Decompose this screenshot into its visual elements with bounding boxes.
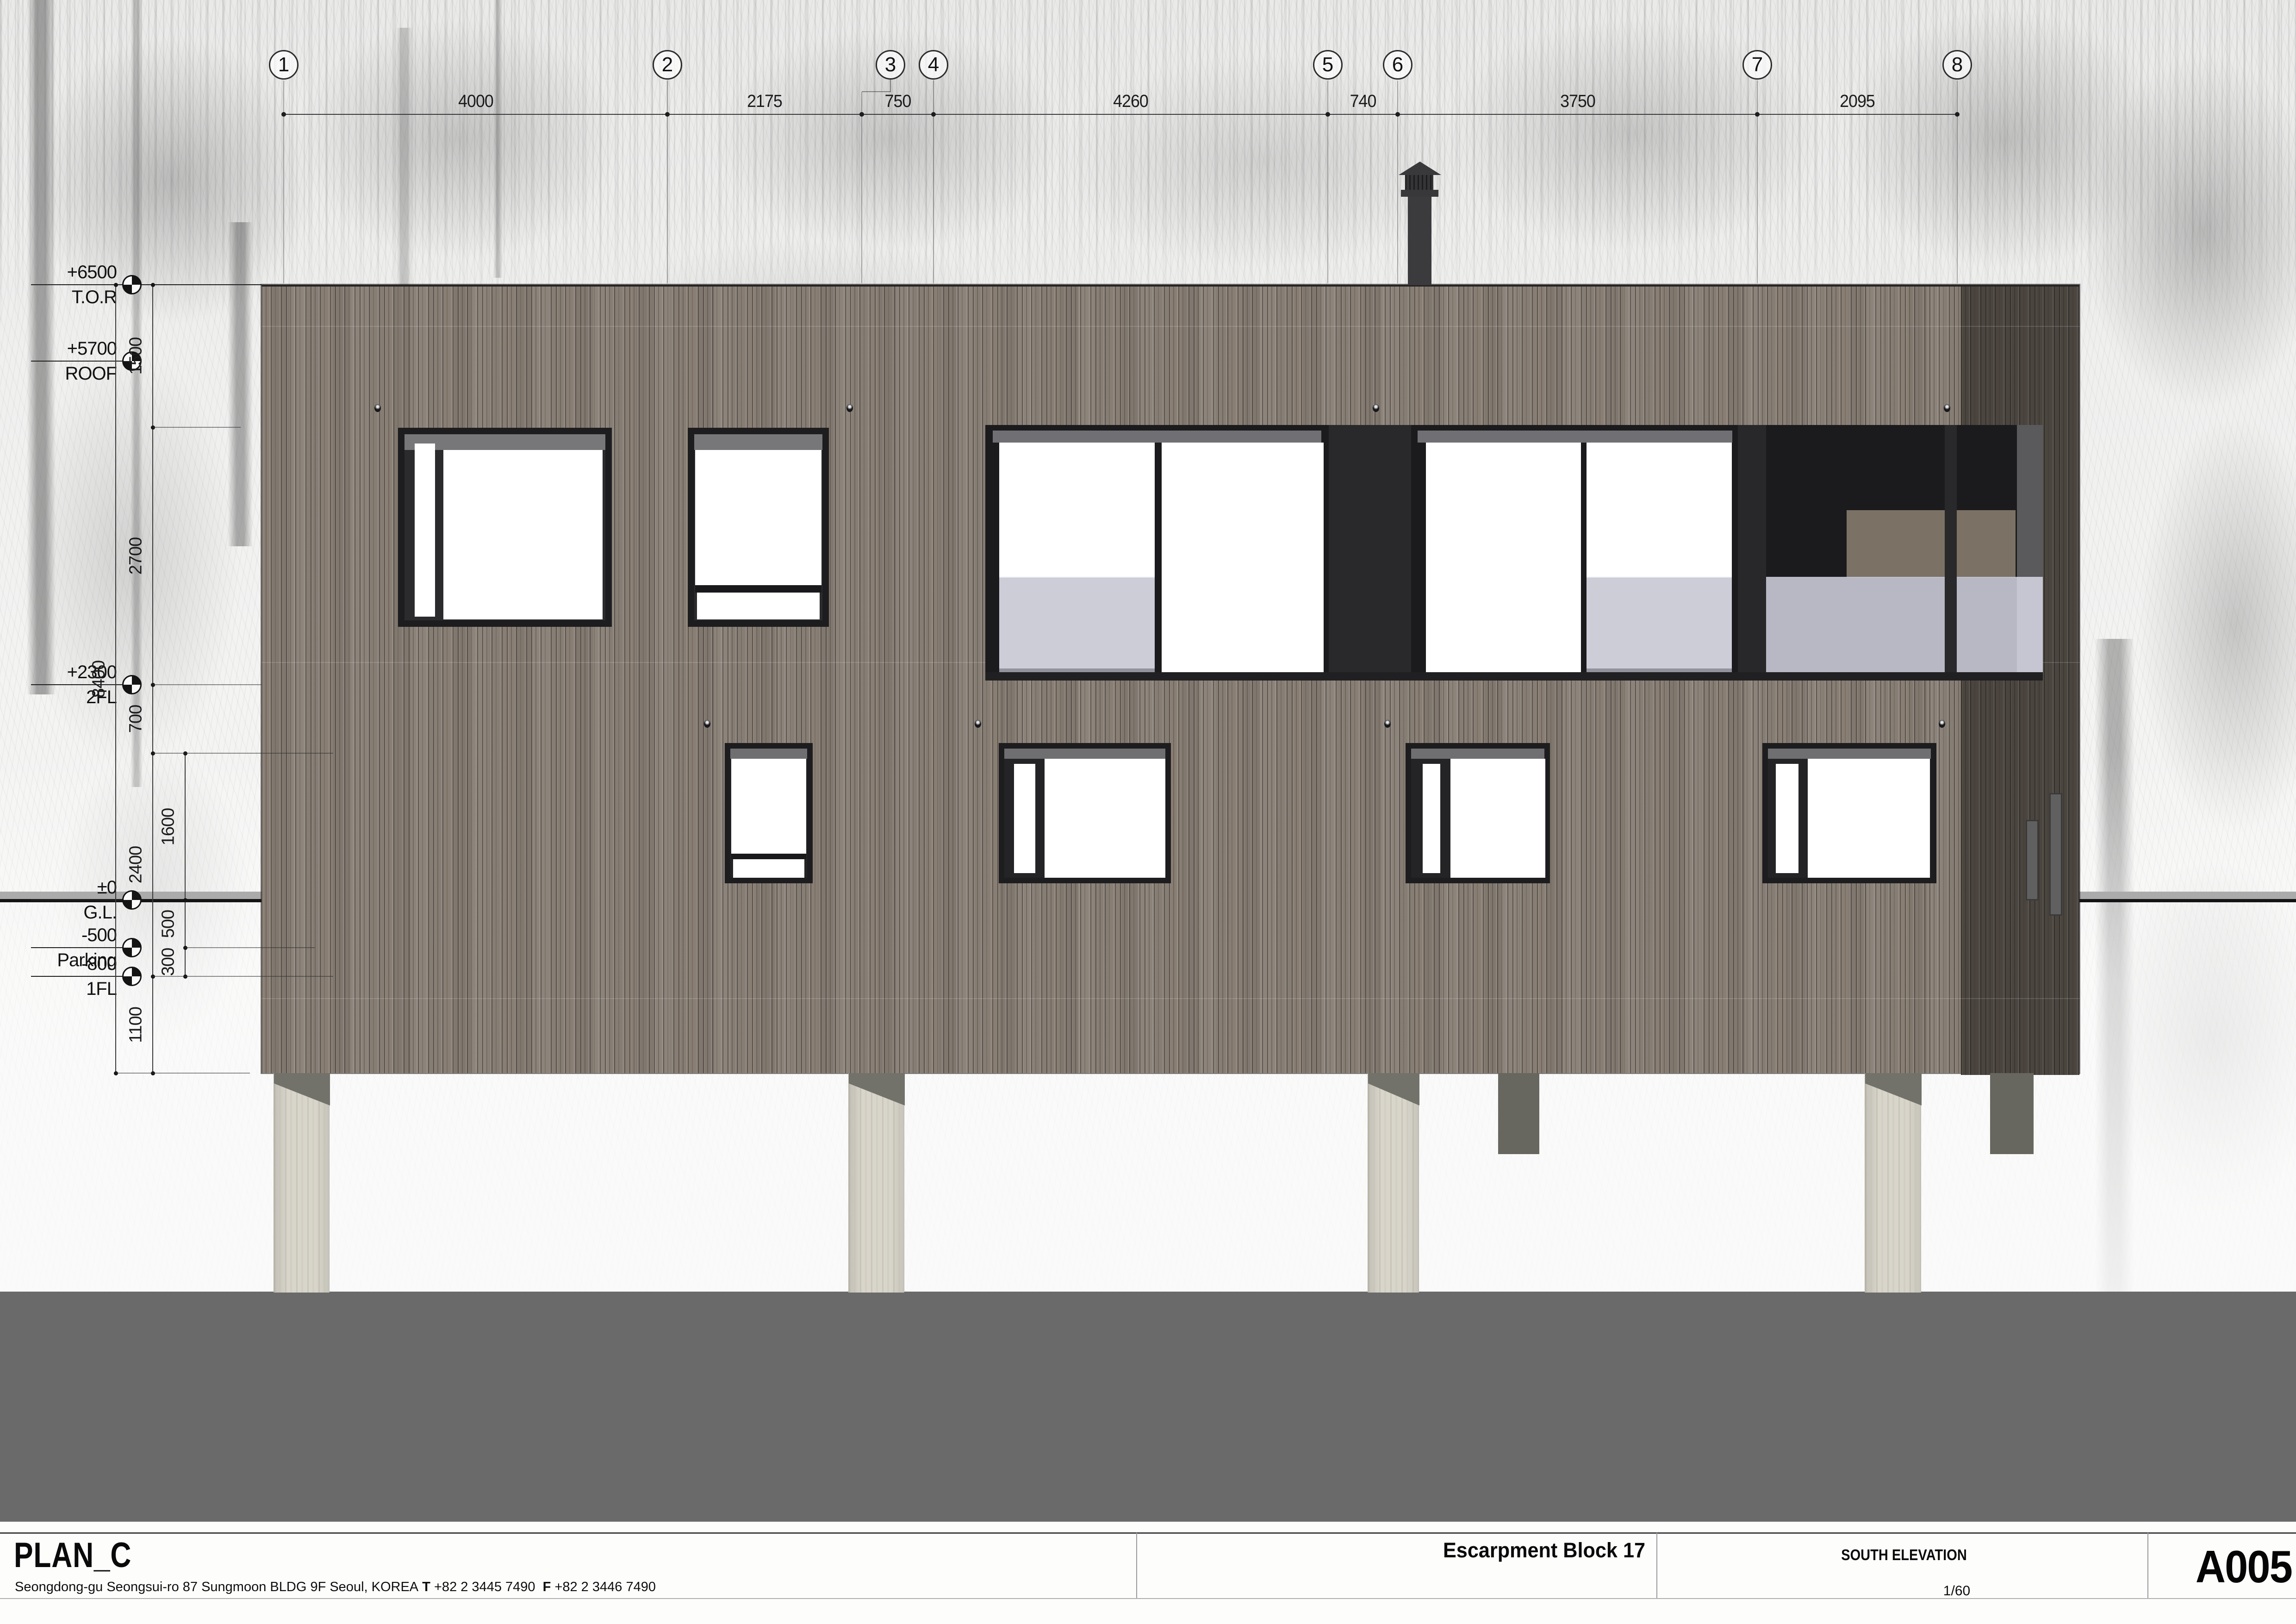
concrete-pillar xyxy=(848,1073,904,1293)
vertical-dim-value: 1600 xyxy=(159,808,179,845)
top-dimension-line xyxy=(284,114,1957,115)
grid-bubble-5: 5 xyxy=(1313,50,1343,80)
louvre-screen xyxy=(1766,425,2017,681)
dimension-tick xyxy=(1325,112,1330,117)
window-1f-4-casement xyxy=(1776,764,1798,873)
window-1f-3-header xyxy=(1411,749,1544,759)
extension-line xyxy=(153,753,333,754)
chain-tick xyxy=(114,1071,118,1075)
extension-line xyxy=(153,684,261,685)
pillar-cap-shadow xyxy=(1368,1073,1419,1106)
louvre-dark-post xyxy=(1945,425,1957,681)
fastener-dot xyxy=(1384,720,1391,728)
ground-line-right-black xyxy=(2079,899,2296,902)
band-post xyxy=(1738,425,1766,681)
chimney-louvre-box xyxy=(1405,175,1433,190)
vertical-dim-value: 1100 xyxy=(126,1007,146,1043)
dimension-tick xyxy=(931,112,936,117)
door-pull-long xyxy=(2049,793,2062,916)
window-2f-2-header xyxy=(694,434,822,450)
grid-bubble-3: 3 xyxy=(876,50,905,80)
fax-number: +82 2 3446 7490 xyxy=(554,1580,656,1594)
band-a-pane2-glass xyxy=(1162,443,1324,672)
level-value: +5700 xyxy=(28,339,117,358)
vertical-dim-line-overall xyxy=(115,285,116,1073)
sheet: 1234567840002175750426074037502095+6500T… xyxy=(0,0,2296,1624)
drawing-scale: 1/60 xyxy=(1910,1583,2003,1599)
grid-line xyxy=(1757,81,1758,283)
level-name: ROOF xyxy=(28,364,117,383)
title-block-divider-2 xyxy=(1656,1533,1657,1598)
level-line xyxy=(31,361,122,362)
extension-line xyxy=(153,976,333,977)
fax-label: F xyxy=(543,1580,551,1594)
grid-bubble-2: 2 xyxy=(653,50,682,80)
dimension-tick xyxy=(859,112,864,117)
grid-bubble-7: 7 xyxy=(1742,50,1772,80)
dimension-tick xyxy=(281,112,286,117)
dark-wall-stub xyxy=(1990,1073,2034,1154)
level-value: ±0 xyxy=(28,878,117,897)
chain-tick xyxy=(151,283,155,287)
ground-band xyxy=(0,1292,2296,1522)
level-symbol xyxy=(122,890,142,910)
band-group-b-header xyxy=(1418,431,1732,443)
band-b-pane2-glass xyxy=(1587,443,1732,578)
vertical-dim-value: 2400 xyxy=(126,846,146,884)
top-dimension-value: 4000 xyxy=(436,92,515,112)
grid-line xyxy=(283,81,284,283)
pillar-cap-shadow xyxy=(1865,1073,1922,1106)
level-line xyxy=(31,284,261,285)
facade-dark-wood-strip xyxy=(1961,287,2079,1075)
view-name: SOUTH ELEVATION xyxy=(1690,1546,2118,1564)
grid-line xyxy=(667,81,668,283)
fastener-dot xyxy=(1939,720,1945,728)
top-dimension-value: 740 xyxy=(1324,92,1402,112)
concrete-pillar xyxy=(1368,1073,1419,1293)
level-line xyxy=(31,976,122,977)
chimney-stack xyxy=(1408,196,1431,285)
window-1f-4-header xyxy=(1768,749,1931,759)
fastener-dot xyxy=(975,720,981,728)
pillar-cap-shadow xyxy=(274,1073,330,1106)
louvre-slats xyxy=(1766,425,2017,681)
dimension-tick xyxy=(665,112,670,117)
address-text: Seongdong-gu Seongsui-ro 87 Sungmoon BLD… xyxy=(15,1580,418,1594)
level-name: T.O.R xyxy=(28,287,117,307)
band-bottom-rail xyxy=(985,672,2043,681)
grid-bubble-6: 6 xyxy=(1383,50,1412,80)
firm-logo: PLAN_C xyxy=(14,1535,131,1575)
siding-joint-line xyxy=(261,326,2079,327)
concrete-pillar xyxy=(274,1073,330,1293)
pillar-cap-shadow xyxy=(849,1073,905,1106)
chain-tick xyxy=(183,974,187,979)
siding-joint-line xyxy=(261,998,2079,999)
window-2f-2-awning xyxy=(697,593,820,619)
window-1f-3-casement xyxy=(1423,764,1440,873)
level-name: G.L. xyxy=(28,903,117,922)
grid-bubble-8: 8 xyxy=(1942,50,1972,80)
chain-tick xyxy=(151,683,155,687)
concrete-pillar xyxy=(1865,1073,1921,1293)
window-2f-1-glass xyxy=(443,450,603,619)
firm-address: Seongdong-gu Seongsui-ro 87 Sungmoon BLD… xyxy=(15,1580,656,1595)
band-b-pane1-glass xyxy=(1426,443,1581,672)
band-b-pane2-guard xyxy=(1587,577,1732,672)
grid-3-leader-v xyxy=(890,80,891,92)
level-symbol xyxy=(122,967,142,986)
vertical-dim-line-subchain xyxy=(185,753,186,976)
grid-bubble-1: 1 xyxy=(269,50,299,80)
level-value: +6500 xyxy=(28,262,117,282)
window-1f-1-glass xyxy=(731,759,806,854)
title-block-top-border xyxy=(0,1532,2296,1534)
top-dimension-value: 2175 xyxy=(725,92,803,112)
tel-number: +82 2 3445 7490 xyxy=(434,1580,535,1594)
window-1f-3-glass xyxy=(1450,759,1545,878)
chain-tick xyxy=(183,898,187,902)
grid-line xyxy=(1957,81,1958,283)
dimension-tick xyxy=(1955,112,1960,117)
level-symbol xyxy=(122,938,142,957)
fastener-dot xyxy=(846,404,853,412)
top-dimension-value: 3750 xyxy=(1538,92,1617,112)
grid-line xyxy=(861,92,862,283)
tel-label: T xyxy=(422,1580,430,1594)
window-2f-1-casement xyxy=(415,443,435,617)
chain-tick xyxy=(114,283,118,287)
level-symbol xyxy=(122,675,142,694)
vertical-dim-value: 300 xyxy=(159,948,179,976)
chain-tick xyxy=(183,946,187,950)
window-1f-2-casement xyxy=(1014,764,1035,873)
vertical-dim-value: 700 xyxy=(126,705,146,733)
grid-bubble-4: 4 xyxy=(919,50,948,80)
window-1f-1-transom xyxy=(731,854,806,859)
vertical-dim-value: 1500 xyxy=(126,337,146,375)
chimney-cap-roof xyxy=(1399,162,1441,175)
chain-tick xyxy=(151,751,155,756)
fastener-dot xyxy=(374,404,381,412)
dimension-tick xyxy=(1755,112,1760,117)
band-a-pane1-guard xyxy=(999,577,1155,672)
chain-tick xyxy=(151,1071,155,1075)
window-2f-2-glass xyxy=(695,450,821,585)
extension-line xyxy=(153,427,241,428)
chimney-flange xyxy=(1401,190,1438,197)
chain-tick xyxy=(151,974,155,979)
vertical-dim-value: 2700 xyxy=(126,537,146,575)
vertical-dim-line-chain xyxy=(152,285,153,1073)
level-line xyxy=(31,947,122,948)
vertical-dim-value: 500 xyxy=(159,910,179,937)
band-end-panel-guard xyxy=(2017,577,2043,672)
project-title: Escarpment Block 17 xyxy=(1165,1538,1645,1562)
sheet-number: A005 xyxy=(2134,1541,2292,1593)
window-2f-2-transom xyxy=(695,585,821,593)
fastener-dot xyxy=(1373,404,1379,412)
level-name: 1FL xyxy=(28,979,117,999)
vertical-dim-overall-value: 8400 xyxy=(89,660,109,698)
window-1f-1-header xyxy=(730,749,807,759)
top-dimension-value: 2095 xyxy=(1818,92,1896,112)
extension-line xyxy=(185,947,315,948)
door-pull-short xyxy=(2026,820,2039,900)
band-a-pane1-glass xyxy=(999,443,1155,578)
level-symbol xyxy=(122,275,142,294)
dimension-tick xyxy=(1395,112,1400,117)
fastener-dot xyxy=(1944,404,1950,412)
top-dimension-value: 750 xyxy=(859,92,937,112)
extension-line xyxy=(116,1073,250,1074)
level-value: -500 xyxy=(28,925,117,945)
band-dark-wall xyxy=(1329,425,1411,681)
chain-tick xyxy=(151,425,155,430)
top-dimension-value: 4260 xyxy=(1091,92,1170,112)
window-1f-1-awning xyxy=(733,859,804,878)
title-block-divider-1 xyxy=(1136,1533,1137,1598)
fastener-dot xyxy=(704,720,710,728)
level-line xyxy=(31,899,122,900)
dark-wall-stub xyxy=(1498,1073,1539,1154)
chain-tick xyxy=(183,751,187,756)
level-value: -800 xyxy=(28,954,117,974)
band-group-a-header xyxy=(993,431,1321,443)
window-1f-2-glass xyxy=(1045,759,1165,878)
window-1f-4-glass xyxy=(1808,759,1930,878)
ground-line-right-gray xyxy=(2079,892,2296,899)
window-1f-2-header xyxy=(1004,749,1165,759)
